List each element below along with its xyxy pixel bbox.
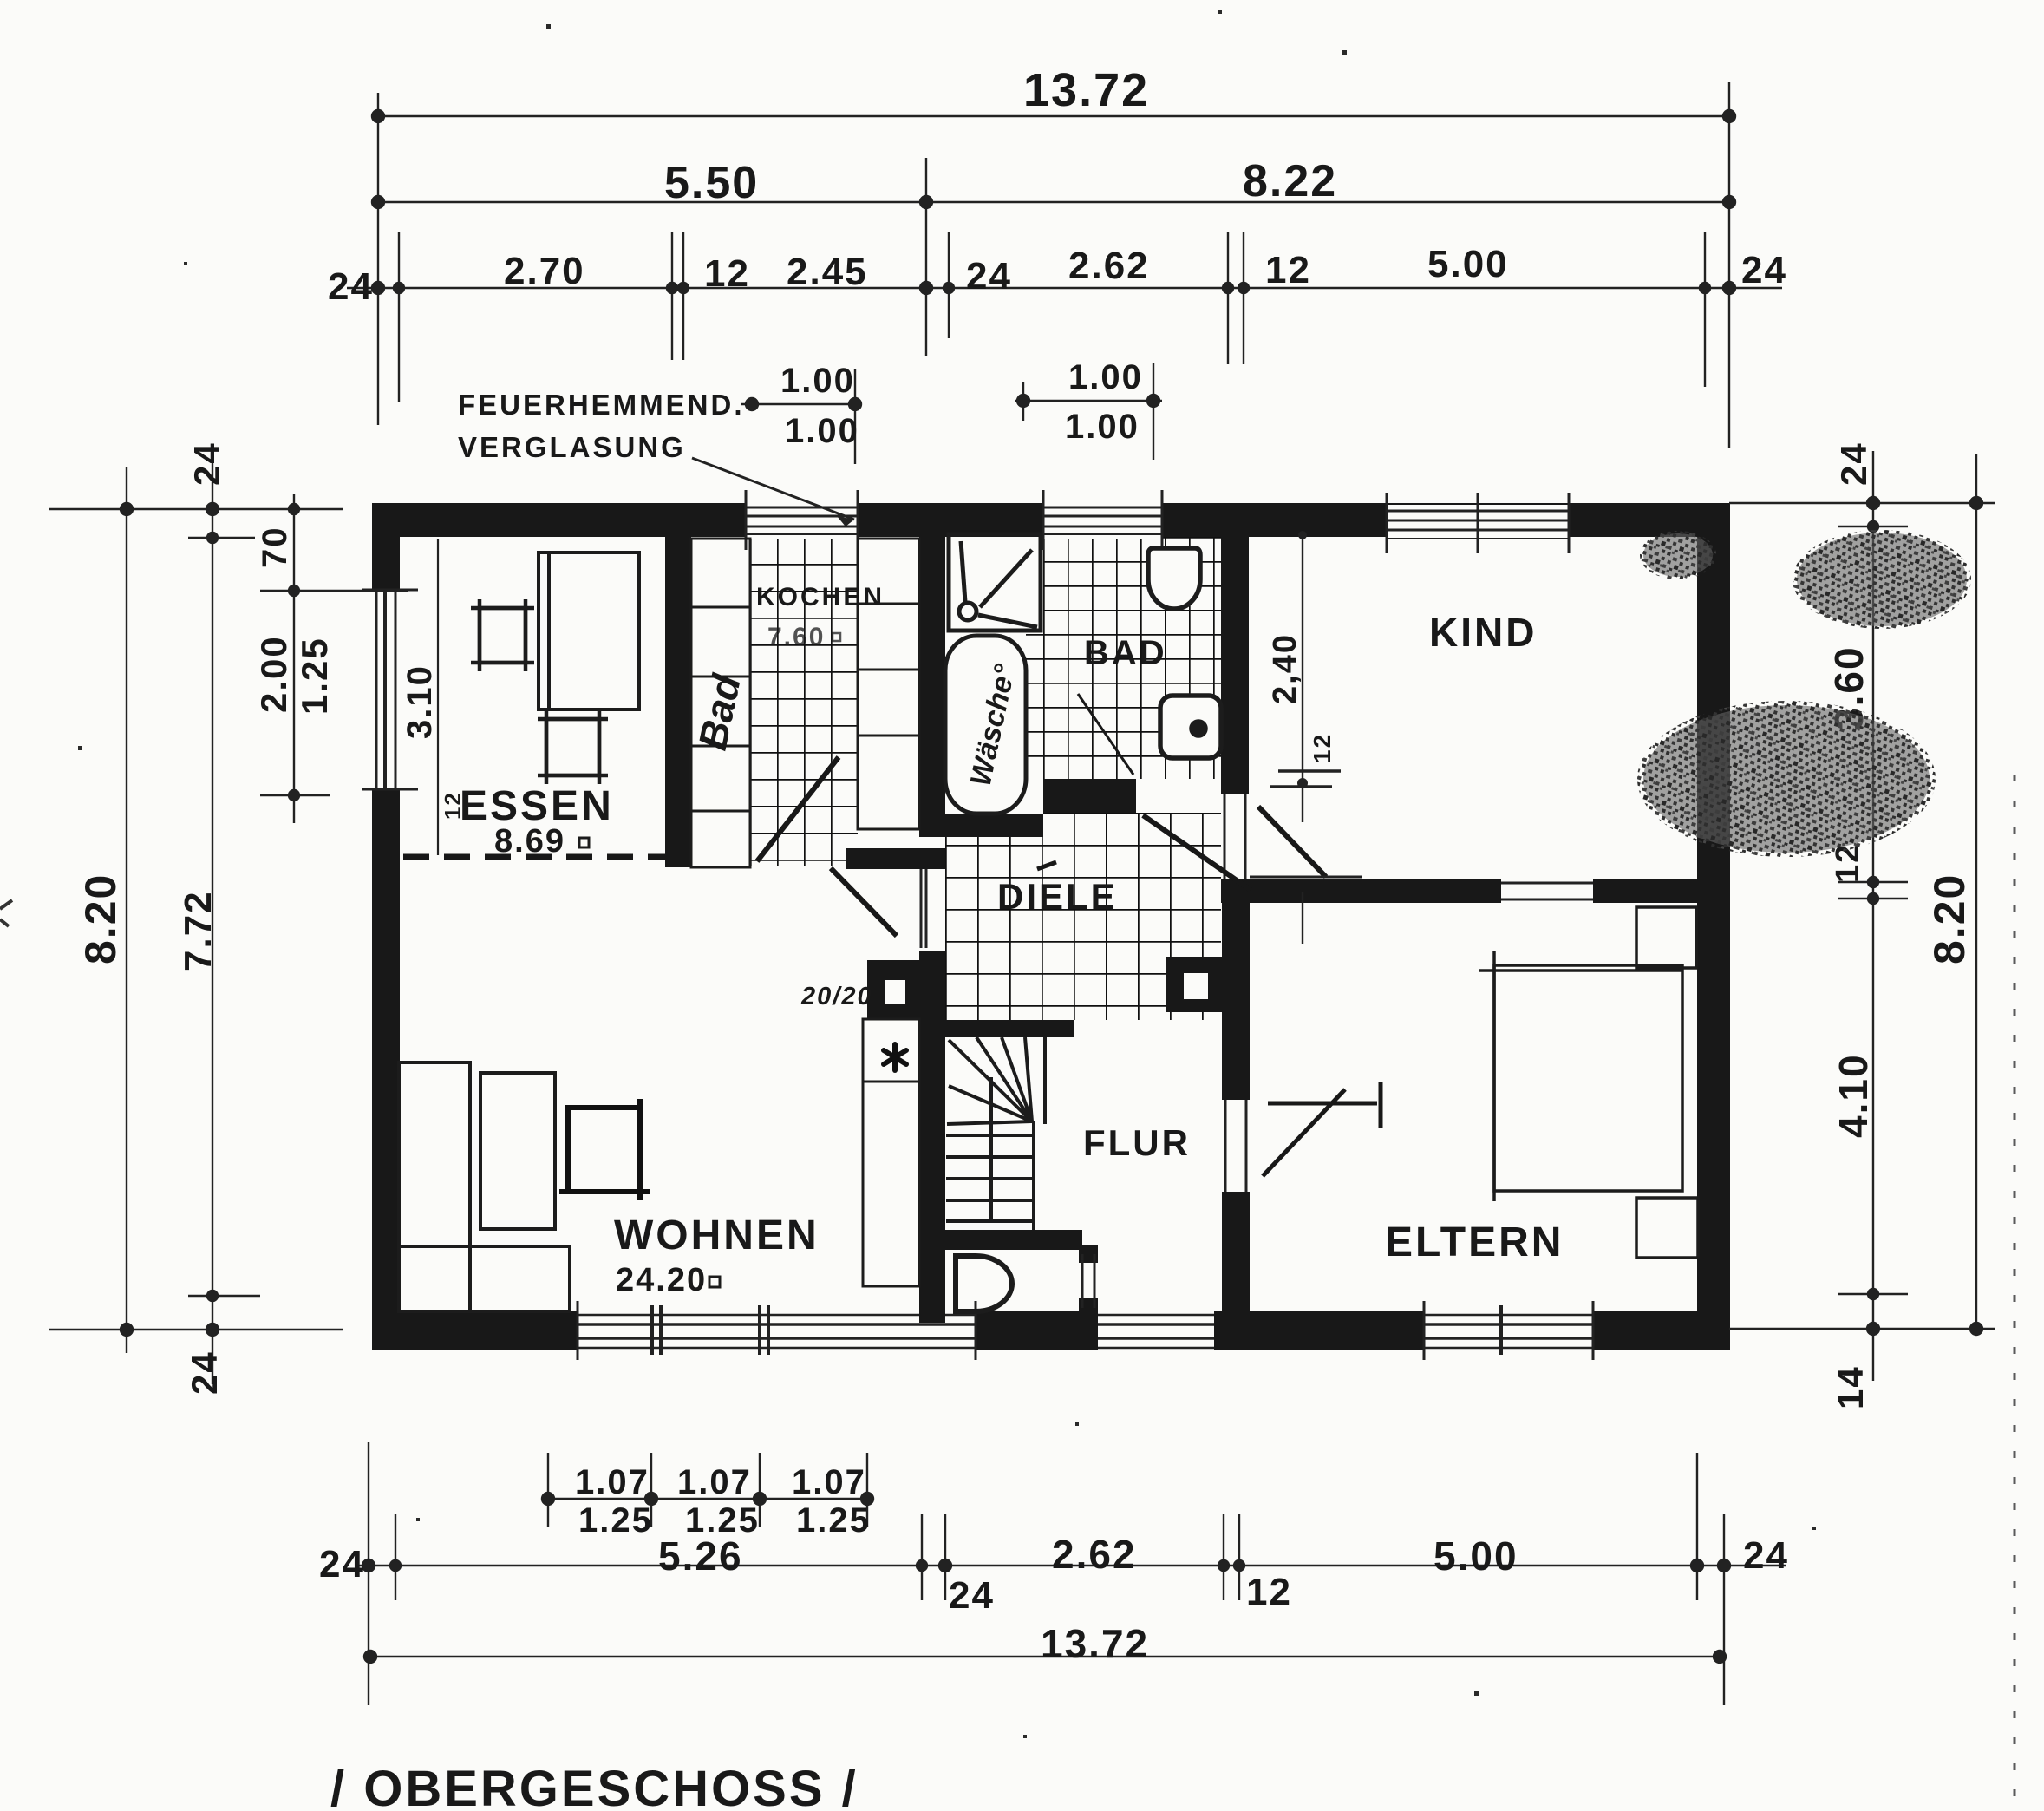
svg-text:24.20: 24.20 (616, 1262, 707, 1298)
svg-text:1.25: 1.25 (294, 637, 335, 715)
svg-text:1.00: 1.00 (785, 412, 859, 450)
svg-text:12: 12 (1246, 1571, 1292, 1613)
svg-text:/ OBERGESCHOSS /: / OBERGESCHOSS / (330, 1761, 859, 1811)
svg-text:12: 12 (1265, 249, 1311, 291)
svg-text:1.25: 1.25 (578, 1501, 653, 1540)
svg-text:12: 12 (1309, 733, 1335, 763)
svg-text:5.50: 5.50 (664, 158, 759, 208)
svg-text:VERGLASUNG: VERGLASUNG (458, 431, 686, 463)
svg-text:WOHNEN: WOHNEN (614, 1213, 820, 1259)
svg-text:2.70: 2.70 (504, 250, 585, 292)
svg-text:8.69: 8.69 (494, 823, 565, 860)
svg-text:1.00: 1.00 (780, 362, 855, 400)
svg-text:12: 12 (440, 791, 466, 820)
svg-text:2.00: 2.00 (253, 635, 294, 713)
svg-text:3.10: 3.10 (401, 664, 439, 739)
svg-text:4.10: 4.10 (1831, 1053, 1876, 1138)
svg-text:24: 24 (184, 1350, 225, 1395)
svg-text:BAD: BAD (1084, 634, 1167, 672)
svg-text:8.20: 8.20 (1925, 873, 1974, 964)
svg-text:7.72: 7.72 (177, 890, 219, 971)
svg-text:5.26: 5.26 (658, 1533, 743, 1579)
svg-text:DIELE: DIELE (997, 876, 1118, 917)
svg-text:20/20: 20/20 (800, 983, 873, 1010)
svg-text:24: 24 (186, 441, 227, 486)
svg-text:24: 24 (1743, 1534, 1789, 1577)
svg-text:1.00: 1.00 (1068, 358, 1143, 396)
svg-text:24: 24 (966, 255, 1012, 297)
svg-text:14: 14 (1830, 1365, 1871, 1409)
svg-text:5.00: 5.00 (1427, 243, 1509, 285)
svg-text:KOCHEN: KOCHEN (756, 583, 885, 611)
svg-text:13.72: 13.72 (1041, 1621, 1149, 1666)
svg-text:24: 24 (319, 1543, 365, 1585)
svg-text:5.00: 5.00 (1433, 1533, 1518, 1579)
svg-text:12: 12 (704, 252, 750, 295)
svg-text:24: 24 (1741, 249, 1787, 291)
svg-text:1.25: 1.25 (796, 1501, 871, 1540)
svg-text:ELTERN: ELTERN (1385, 1219, 1564, 1265)
svg-text:FLUR: FLUR (1083, 1122, 1191, 1163)
svg-text:2.62: 2.62 (1052, 1532, 1137, 1577)
svg-text:KIND: KIND (1429, 610, 1537, 655)
svg-text:FEUERHEMMEND.: FEUERHEMMEND. (458, 389, 745, 421)
svg-text:8.20: 8.20 (76, 873, 125, 964)
svg-text:1.00: 1.00 (1065, 408, 1140, 446)
svg-text:24: 24 (328, 265, 374, 308)
svg-text:2.62: 2.62 (1068, 245, 1150, 287)
svg-text:8.22: 8.22 (1243, 156, 1337, 206)
svg-text:13.72: 13.72 (1023, 64, 1149, 116)
svg-text:7.60: 7.60 (767, 623, 825, 651)
svg-text:70: 70 (256, 526, 294, 569)
svg-text:24: 24 (949, 1574, 995, 1617)
svg-text:2.45: 2.45 (787, 251, 868, 293)
svg-text:1.07: 1.07 (792, 1463, 866, 1501)
svg-text:2,40: 2,40 (1267, 633, 1303, 704)
svg-text:1.07: 1.07 (575, 1463, 650, 1501)
svg-text:1.07: 1.07 (677, 1463, 752, 1501)
svg-text:24: 24 (1833, 441, 1874, 486)
